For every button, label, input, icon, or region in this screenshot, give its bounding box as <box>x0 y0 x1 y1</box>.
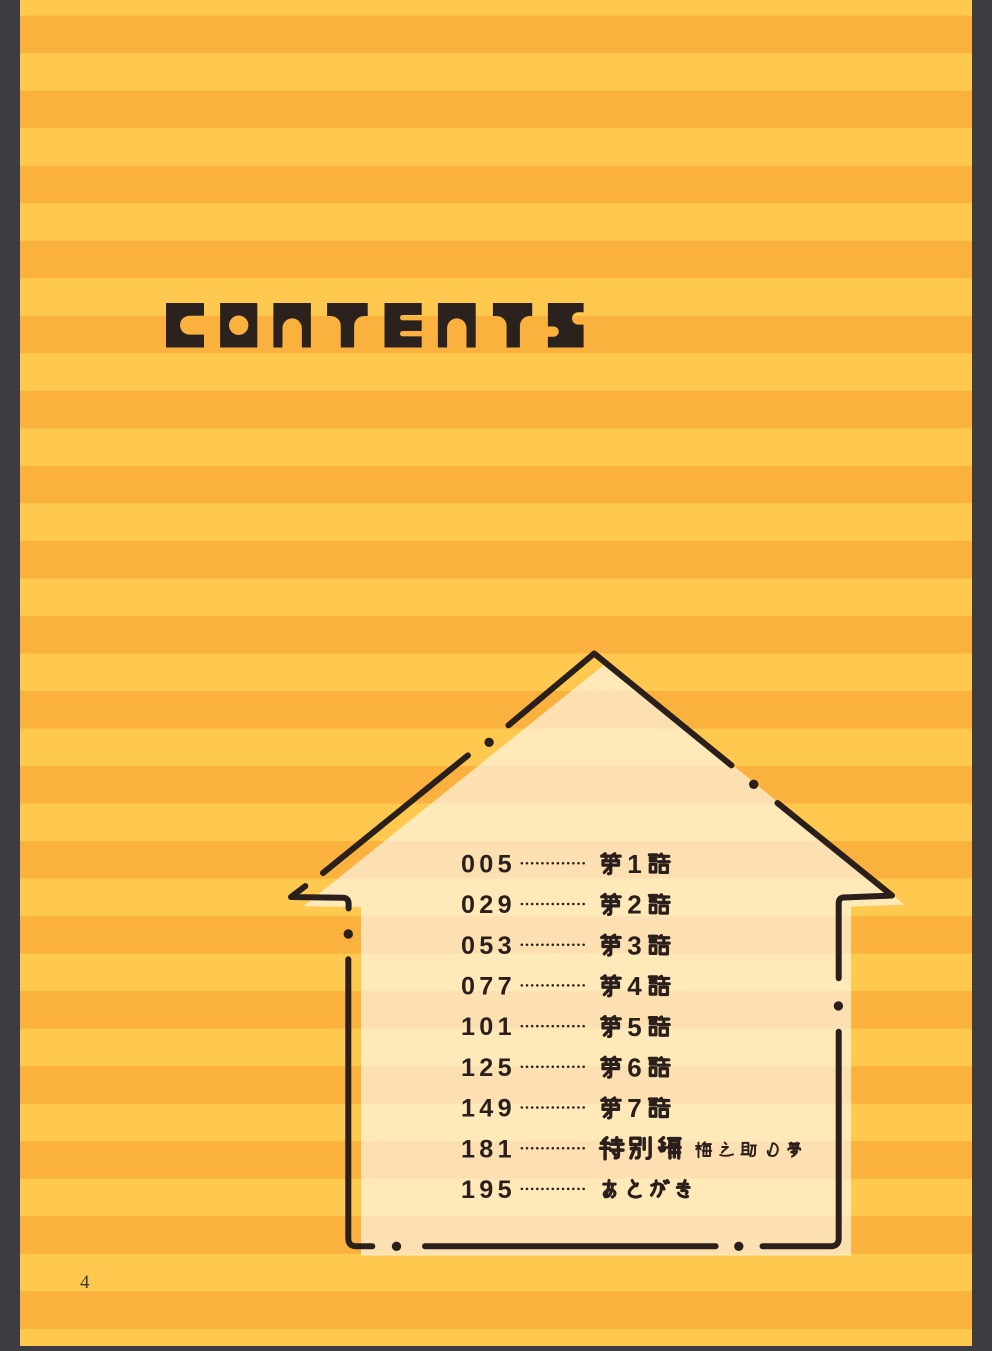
svg-text:029: 029 <box>461 891 516 919</box>
svg-text:6: 6 <box>627 1053 641 1083</box>
svg-text:2: 2 <box>627 890 641 920</box>
svg-text:3: 3 <box>627 930 641 960</box>
svg-text:5: 5 <box>627 1012 641 1042</box>
svg-text:7: 7 <box>627 1093 641 1123</box>
svg-text:181: 181 <box>461 1135 516 1163</box>
svg-text:077: 077 <box>461 973 516 1001</box>
svg-text:4: 4 <box>627 971 642 1001</box>
svg-text:149: 149 <box>461 1095 516 1123</box>
svg-text:005: 005 <box>461 850 516 878</box>
svg-text:101: 101 <box>461 1013 516 1041</box>
svg-text:195: 195 <box>461 1176 516 1204</box>
svg-text:1: 1 <box>627 849 641 879</box>
svg-text:125: 125 <box>461 1054 516 1082</box>
svg-text:4: 4 <box>80 1272 90 1293</box>
svg-text:053: 053 <box>461 932 516 960</box>
